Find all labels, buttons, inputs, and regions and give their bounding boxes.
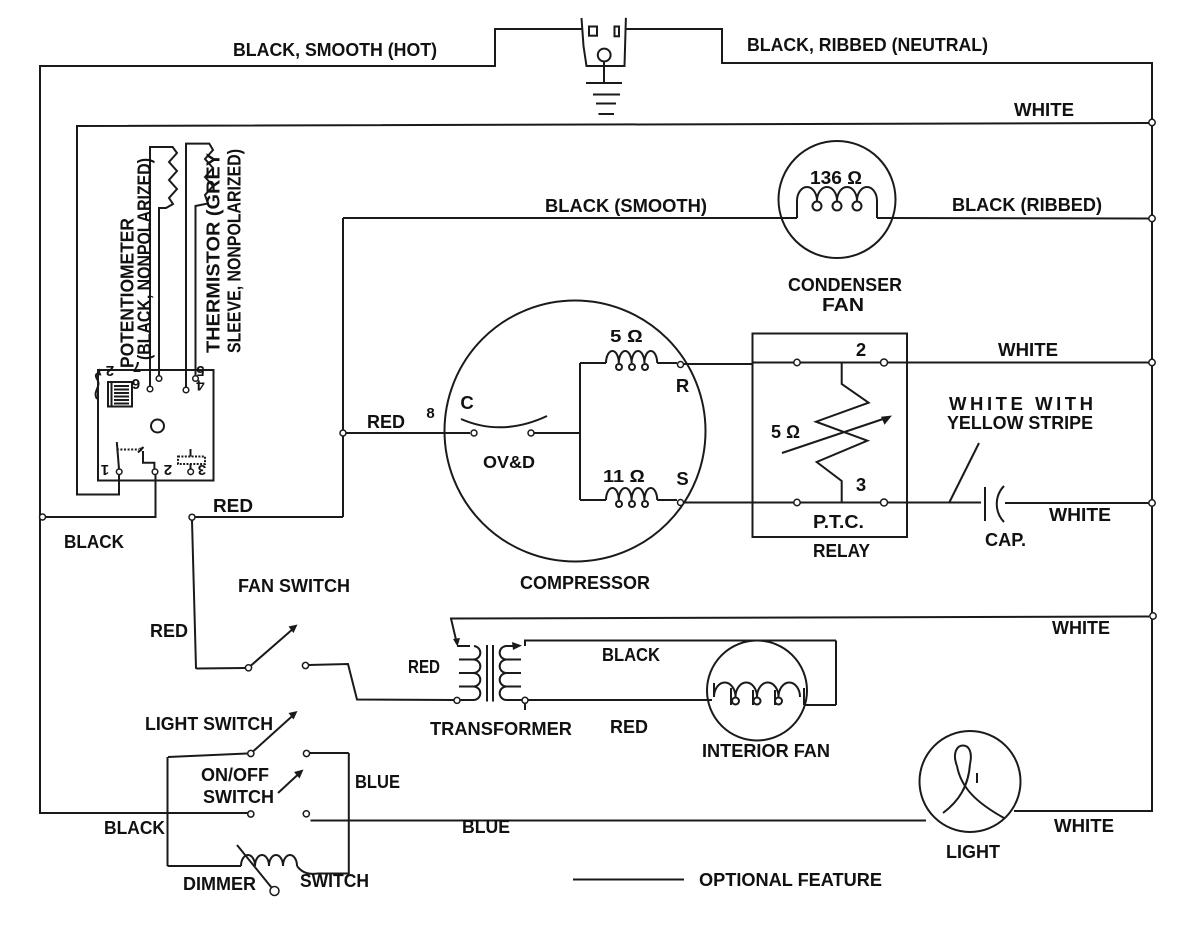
svg-text:3: 3 — [198, 461, 206, 478]
svg-text:WHITE: WHITE — [998, 339, 1058, 360]
svg-text:WHITE WITH: WHITE WITH — [949, 393, 1093, 414]
svg-text:8: 8 — [426, 405, 434, 422]
svg-text:LIGHT: LIGHT — [946, 841, 1001, 862]
svg-text:BLACK: BLACK — [602, 644, 661, 665]
svg-text:2: 2 — [856, 339, 866, 360]
svg-text:SWITCH: SWITCH — [300, 870, 369, 891]
svg-text:RELAY: RELAY — [813, 540, 871, 561]
svg-text:LIGHT SWITCH: LIGHT SWITCH — [145, 713, 273, 734]
svg-text:136 Ω: 136 Ω — [810, 167, 862, 188]
svg-text:ON/OFF: ON/OFF — [201, 764, 269, 785]
svg-text:BLACK: BLACK — [104, 817, 166, 838]
svg-text:CAP.: CAP. — [985, 529, 1026, 550]
svg-text:TRANSFORMER: TRANSFORMER — [430, 718, 572, 739]
svg-text:RED: RED — [150, 620, 188, 641]
svg-text:C: C — [460, 392, 473, 413]
svg-text:4: 4 — [196, 377, 205, 394]
svg-text:(BLACK, NONPOLARIZED): (BLACK, NONPOLARIZED) — [134, 158, 155, 360]
svg-text:WHITE: WHITE — [1054, 815, 1114, 836]
svg-text:BLACK: BLACK — [64, 531, 125, 552]
svg-text:1: 1 — [101, 461, 109, 478]
svg-text:CONDENSER: CONDENSER — [788, 274, 902, 295]
svg-text:WHITE: WHITE — [1049, 504, 1111, 525]
svg-text:6: 6 — [132, 375, 140, 392]
svg-text:2: 2 — [106, 362, 114, 379]
svg-text:BLUE: BLUE — [355, 771, 400, 792]
svg-text:BLACK, SMOOTH (HOT): BLACK, SMOOTH (HOT) — [233, 39, 437, 60]
svg-text:5 Ω: 5 Ω — [610, 326, 643, 346]
svg-text:RED: RED — [213, 495, 253, 516]
svg-text:SLEEVE, NONPOLARIZED): SLEEVE, NONPOLARIZED) — [224, 149, 245, 353]
svg-text:RED: RED — [367, 411, 405, 432]
svg-text:SWITCH: SWITCH — [203, 786, 274, 807]
svg-text:BLACK (RIBBED): BLACK (RIBBED) — [952, 194, 1102, 215]
svg-text:INTERIOR FAN: INTERIOR FAN — [702, 740, 830, 761]
svg-text:2: 2 — [164, 461, 172, 478]
svg-text:RED: RED — [408, 656, 440, 677]
svg-text:11 Ω: 11 Ω — [603, 466, 645, 486]
svg-text:OPTIONAL FEATURE: OPTIONAL FEATURE — [699, 869, 882, 890]
svg-text:YELLOW STRIPE: YELLOW STRIPE — [947, 412, 1093, 433]
svg-text:BLACK, RIBBED (NEUTRAL): BLACK, RIBBED (NEUTRAL) — [747, 34, 988, 55]
svg-text:COMPRESSOR: COMPRESSOR — [520, 572, 650, 593]
svg-text:WHITE: WHITE — [1014, 99, 1074, 120]
svg-text:THERMISTOR (GREY: THERMISTOR (GREY — [204, 153, 224, 353]
svg-text:BLUE: BLUE — [462, 816, 510, 837]
svg-text:OV&D: OV&D — [483, 452, 535, 472]
svg-text:WHITE: WHITE — [1052, 617, 1110, 638]
svg-text:5: 5 — [196, 362, 204, 379]
svg-text:5 Ω: 5 Ω — [771, 421, 800, 442]
svg-text:S: S — [676, 468, 688, 489]
svg-text:FAN SWITCH: FAN SWITCH — [238, 575, 350, 596]
svg-text:RED: RED — [610, 716, 648, 737]
svg-text:BLACK (SMOOTH): BLACK (SMOOTH) — [545, 195, 707, 216]
svg-text:DIMMER: DIMMER — [183, 873, 256, 894]
svg-text:FAN: FAN — [822, 294, 864, 315]
svg-text:R: R — [676, 375, 689, 396]
svg-text:P.T.C.: P.T.C. — [813, 511, 864, 532]
svg-text:3: 3 — [856, 474, 866, 495]
